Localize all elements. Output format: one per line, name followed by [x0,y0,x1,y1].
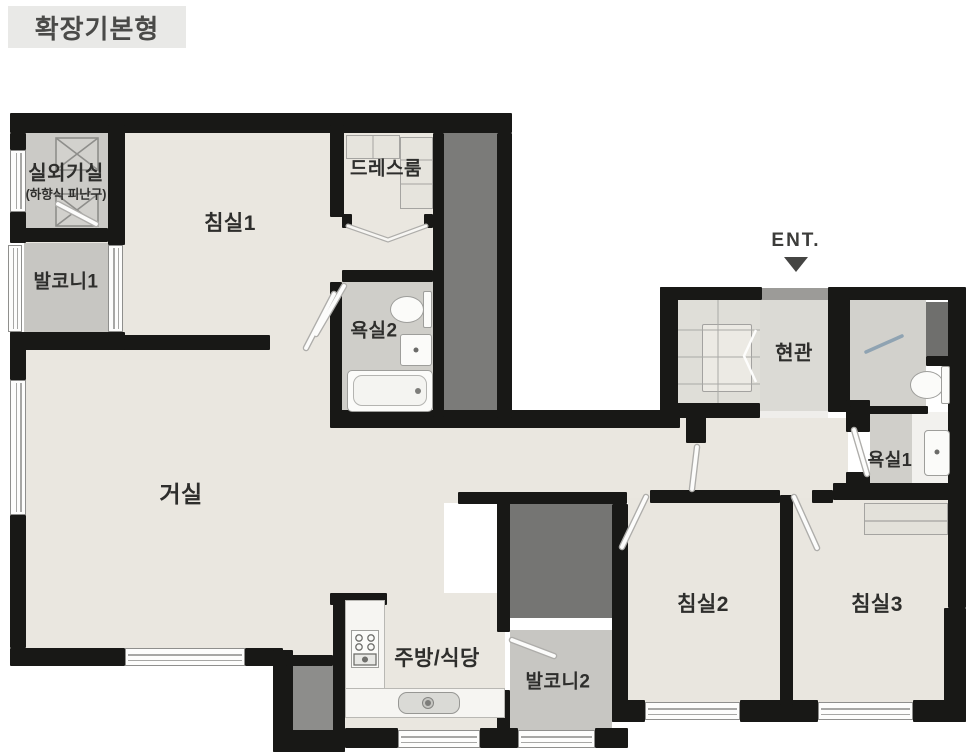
label-entry: 현관 [775,337,813,366]
washbasin-bath1 [924,430,950,476]
window-pane-line [521,736,592,738]
label-bedroom3: 침실3 [851,588,903,618]
bathtub-inner [353,375,427,406]
window-pane-line [128,654,242,656]
window-pane-line [113,248,115,329]
toilet-bath1 [910,371,944,399]
window-pane-line [521,742,592,744]
floor-plan: ENT. 실외기실 (하향식 피난구) 침실1 드레스룸 발코니1 욕실2 거실… [0,0,980,752]
window-pane-line [821,714,910,716]
window-pane-line [648,708,737,710]
window [818,702,913,720]
window-pane-line [20,153,22,209]
window-pane-line [401,742,477,744]
window [108,245,123,332]
windows-layer [0,0,980,752]
toilet-tank-bath1 [941,366,950,404]
floor-plan-page: 확장기본형 [0,0,980,752]
window [645,702,740,720]
window [398,730,480,748]
window-pane-line [16,153,18,209]
window-pane-line [648,714,737,716]
label-living: 거실 [159,475,202,509]
label-outdoor-unit-sub: (하향식 피난구) [26,184,107,203]
window-pane-line [118,248,120,329]
label-dressroom: 드레스룸 [350,154,422,181]
kitchen-stove [351,630,379,668]
entrance-arrow-icon [784,257,808,272]
label-bath1: 욕실1 [868,446,913,472]
window-pane-line [16,383,18,512]
window [8,245,22,332]
entry-pantry-cabinet [702,324,752,392]
window-pane-line [20,383,22,512]
entrance-marker-label: ENT. [771,230,820,252]
window-pane-line [821,708,910,710]
window [125,648,245,666]
label-balcony1: 발코니1 [33,267,98,294]
label-bath2: 욕실2 [350,316,397,343]
kitchen-sink-drain [422,697,434,709]
window-pane-line [13,248,15,329]
window [10,150,26,212]
toilet-tank-bath2 [423,291,432,328]
label-outdoor-unit: 실외기실 [28,157,104,186]
washbasin-bath2 [400,334,432,366]
window [10,380,26,515]
label-balcony2: 발코니2 [525,667,590,694]
label-kitchen: 주방/식당 [394,642,480,672]
window-pane-line [401,736,477,738]
label-bedroom1: 침실1 [204,207,256,237]
window [518,730,595,748]
window-pane-line [17,248,19,329]
window-pane-line [128,660,242,662]
label-bedroom2: 침실2 [677,588,729,618]
